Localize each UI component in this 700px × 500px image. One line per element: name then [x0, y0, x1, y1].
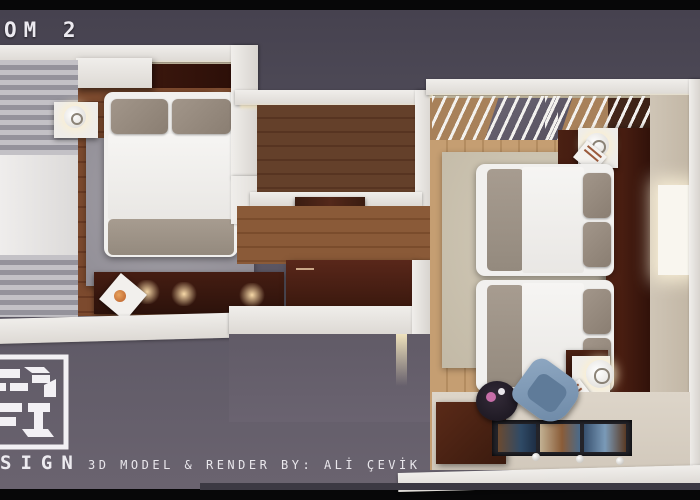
glowing-wall-panel: [658, 185, 692, 275]
pillow: [583, 173, 611, 218]
right-edge-wall: [689, 79, 700, 475]
bed-foot-runner: [487, 285, 524, 387]
curtain-bottom: [0, 255, 78, 317]
designer-logo: [0, 353, 74, 453]
stool-decor: [486, 392, 496, 402]
pillow: [172, 99, 231, 134]
drawer-knob-icon: [532, 453, 540, 461]
vestibule-top-wall: [235, 90, 427, 105]
bed-foot-runner: [108, 219, 234, 255]
rendered-scene: OM 2: [0, 0, 700, 500]
stool-decor: [498, 388, 505, 395]
bottom-shadow-strip: [200, 483, 700, 490]
dresser-handle-icon: [296, 268, 314, 270]
dresser-ledge-wall: [229, 306, 429, 334]
double-bed-duvet: [108, 134, 234, 220]
top-letterbox-bar: [0, 0, 700, 10]
pillow: [111, 99, 168, 134]
light-spill: [396, 334, 407, 386]
round-stool: [476, 381, 518, 421]
pillow: [583, 222, 611, 267]
decor-bowl: [114, 290, 126, 302]
twin-bed-duvet: [522, 167, 584, 273]
magazine: [584, 424, 626, 452]
vestibule-floor: [257, 105, 417, 193]
spotlight-glow: [170, 282, 198, 306]
magazine: [540, 424, 580, 452]
vestibule-left-wall: [231, 45, 258, 180]
corridor-floor: [237, 206, 431, 264]
bottom-letterbox-bar: [0, 489, 700, 500]
window-sheer: [0, 155, 78, 255]
spotlight-glow: [238, 283, 266, 307]
table-lamp-icon: [586, 360, 614, 388]
table-lamp-icon: [64, 106, 86, 128]
logo-wordmark: SIGN: [0, 452, 82, 474]
drawer-knob-icon: [616, 457, 624, 465]
ledge-side-wall: [412, 260, 430, 334]
bed-canopy-lightbox: [76, 58, 152, 88]
pillow: [583, 289, 611, 334]
right-room-top-wall: [426, 79, 700, 95]
drawer-knob-icon: [576, 455, 584, 463]
magazine: [498, 424, 536, 452]
credit-text: 3D MODEL & RENDER BY: ALİ ÇEVİK: [88, 458, 420, 472]
bed-foot-runner: [487, 169, 524, 271]
room-label: OM 2: [4, 18, 83, 42]
